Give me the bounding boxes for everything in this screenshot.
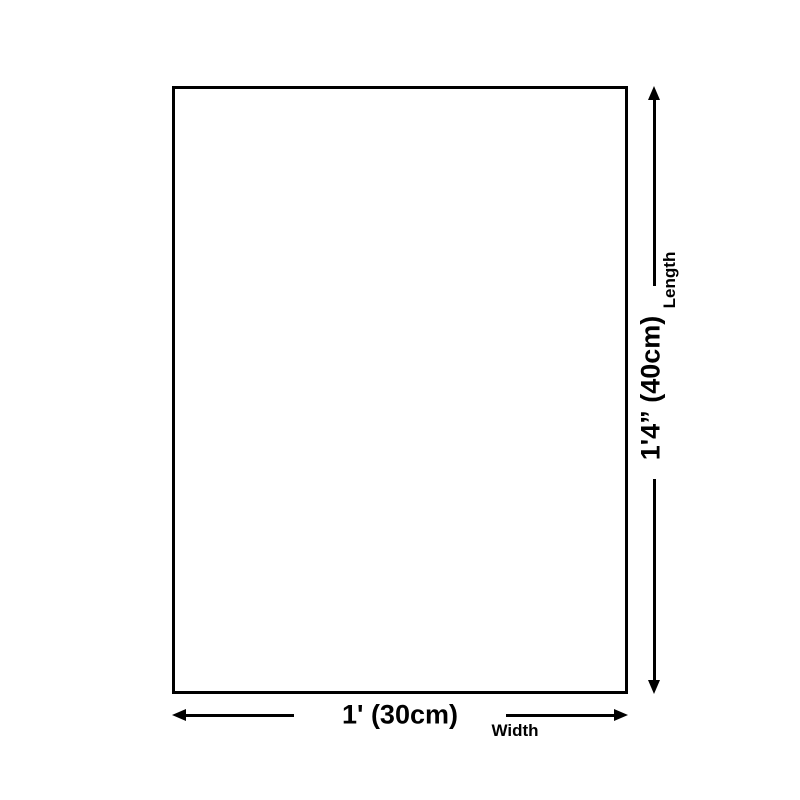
length-arrow-line-bottom xyxy=(653,479,656,682)
width-arrow-line-left xyxy=(185,714,294,717)
width-axis-label: Width xyxy=(491,721,538,741)
arrow-left-icon xyxy=(172,709,186,721)
length-axis-label: Length xyxy=(660,252,680,309)
size-diagram: 1'4” (40cm) Length 1' (30cm) Width xyxy=(0,0,800,800)
arrow-right-icon xyxy=(614,709,628,721)
width-arrow-line-right xyxy=(506,714,615,717)
length-arrow-line-top xyxy=(653,98,656,286)
product-outline-rect xyxy=(172,86,628,694)
arrow-down-icon xyxy=(648,680,660,694)
length-dimension-value: 1'4” (40cm) xyxy=(636,316,667,461)
width-dimension-value: 1' (30cm) xyxy=(342,700,458,731)
